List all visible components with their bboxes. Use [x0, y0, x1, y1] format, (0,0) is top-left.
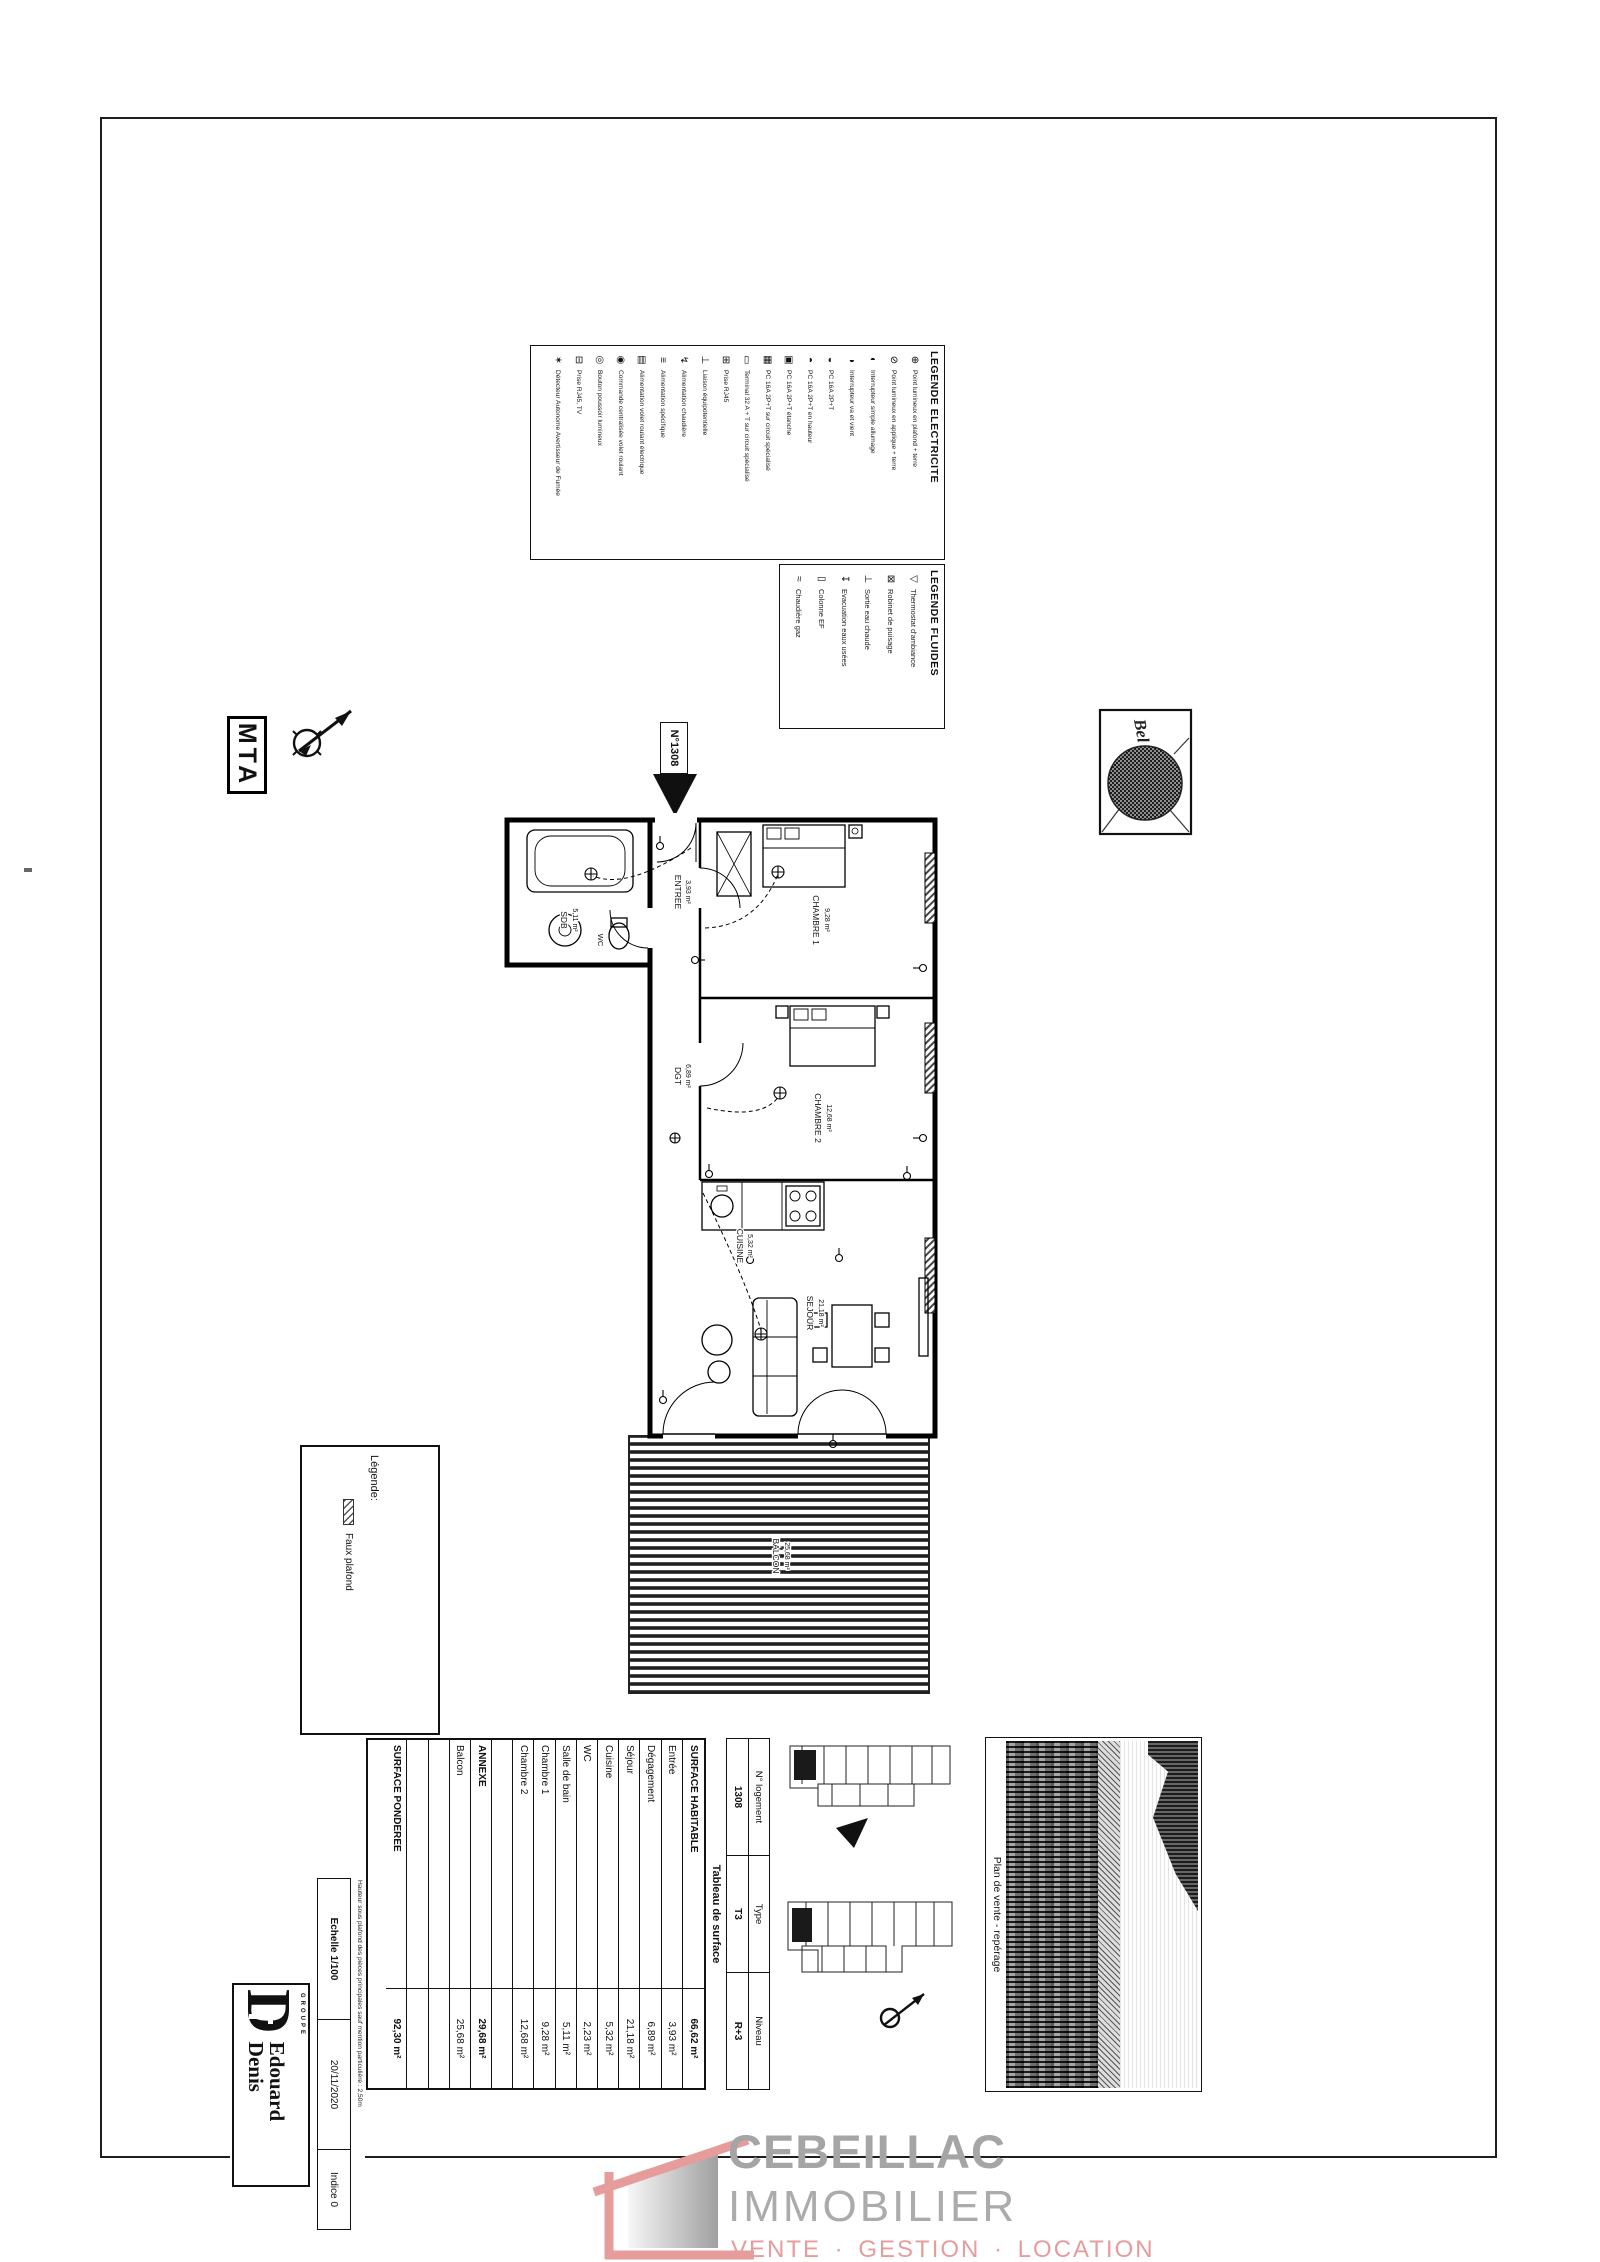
tv-socket-icon: ⊟ — [574, 350, 584, 370]
edouard-denis-logo: GROUPE D Edouard Denis — [232, 1983, 310, 2187]
legend-item: ↯Alimentation chaudière — [673, 350, 694, 555]
switch-twoway-icon: ◑ — [847, 350, 857, 370]
scale-cell: Echelle 1/100 — [318, 1879, 350, 2019]
rj45-icon: ⊞ — [721, 350, 731, 370]
room-label-chambre2: CHAMBRE 2 — [813, 1093, 823, 1143]
legend-item: ◓PC 16A 2P+T en hauteur — [799, 350, 820, 555]
surface-table: SURFACE HABITABLE66,62 m² Entrée3,93 m² … — [366, 1738, 706, 2090]
legend-item: ✶Détecteur Autonome Avertisseur de Fumée — [547, 350, 568, 555]
legend-electricite: LEGENDE ELECTRICITE ⊕Point lumineux en p… — [530, 345, 945, 560]
legend-item: ⊥Sortie eau chaude — [856, 569, 879, 724]
boiler-icon: ≈ — [794, 569, 804, 589]
thermostat-icon: ▽ — [909, 569, 919, 589]
main-walls — [650, 820, 935, 1436]
drain-icon: ↧ — [840, 569, 850, 589]
room-label-entree: ENTREE — [673, 875, 683, 910]
tap-icon: ⊠ — [886, 569, 896, 589]
hot-water-icon: ⊥ — [863, 569, 873, 589]
info-header-niveau: Niveau — [748, 1973, 769, 2089]
room-area-entree: 3,93 m² — [684, 880, 691, 904]
legend-item: ▦PC 16A 2P+T sur circuit spécialisé — [757, 350, 778, 555]
legend-item: ▣PC 16A 2P+T étanche — [778, 350, 799, 555]
push-button-icon: ◎ — [595, 350, 605, 370]
table-row: Salle de bain5,11 m² — [556, 1740, 577, 2088]
room-area-dgt: 6,89 m² — [684, 1064, 691, 1088]
faux-plafond-hatch-swatch — [343, 1499, 354, 1525]
legend-item: ▭Terminal 32 A + T sur circuit spécialis… — [736, 350, 757, 555]
window — [925, 1023, 935, 1093]
table-row: Chambre 212,68 m² — [513, 1740, 534, 2088]
legend-item: ◑Interrupteur va et vient — [841, 350, 862, 555]
legend-item: ⊟Prise RJ45, TV — [568, 350, 589, 555]
room-area-chambre1: 9,28 m² — [823, 908, 830, 932]
scale-date-indice-row: Echelle 1/100 20/11/2020 Indice 0 — [317, 1878, 351, 2230]
legend-item: ▽Thermostat d'ambiance — [902, 569, 925, 724]
indice-cell: Indice 0 — [318, 2149, 350, 2229]
legend-fluides: LEGENDE FLUIDES ▽Thermostat d'ambiance ⊠… — [779, 564, 945, 729]
legend-item: ⊞Prise RJ45 — [715, 350, 736, 555]
room-label-sdb: SDB — [559, 911, 569, 929]
key-plan — [772, 1732, 982, 2090]
table-row: SURFACE HABITABLE66,62 m² — [683, 1740, 704, 2088]
table-row — [429, 1740, 450, 2088]
info-value-niveau: R+3 — [727, 1973, 748, 2089]
room-label-sejour: SEJOUR — [805, 1296, 815, 1330]
legend-item: ◉Commande centralisée volet roulant — [610, 350, 631, 555]
legend-item: ⊠Robinet de puisage — [879, 569, 902, 724]
watermark-brand2: IMMOBILIER — [728, 2182, 1017, 2232]
legend-item: ≡Alimentation spécifique — [652, 350, 673, 555]
watermark-tagline: VENTE · GESTION · LOCATION — [731, 2236, 1155, 2262]
faux-plafond-caption: Légende: — [368, 1455, 380, 1501]
legend-item: ▤Alimentation volet roulant électrique — [631, 350, 652, 555]
room-area-balcon: 25,68 m² — [783, 1542, 790, 1570]
smoke-detector-icon: ✶ — [553, 350, 563, 370]
unit-number-tag: N°1308 — [660, 722, 688, 774]
reperage-panel: Plan de vente - repérage — [985, 1737, 1202, 2092]
legend-fluides-title: LEGENDE FLUIDES — [928, 570, 940, 724]
socket-high-icon: ◓ — [805, 350, 815, 370]
mta-logo: MTA — [227, 716, 267, 794]
room-label-wc: WC — [596, 934, 605, 947]
info-header-logement: N° logement — [748, 1739, 769, 1855]
legend-item: ⊕Point lumineux en plafond + terre — [904, 350, 925, 555]
socket-dedicated-icon: ▦ — [763, 350, 773, 370]
table-row: Chambre 19,28 m² — [535, 1740, 556, 2088]
table-title: Tableau de surface — [706, 1738, 726, 2090]
window — [925, 853, 935, 923]
stamp: Bel — [1098, 708, 1193, 836]
reperage-title: Plan de vente - repérage — [989, 1743, 1005, 2086]
boiler-supply-icon: ↯ — [679, 350, 689, 370]
faux-plafond-item: Faux plafond — [343, 1533, 354, 1591]
window — [925, 1238, 935, 1313]
room-label-chambre1: CHAMBRE 1 — [811, 895, 821, 945]
north-arrow-icon — [285, 705, 360, 765]
room-area-chambre2: 12,68 m² — [825, 1104, 832, 1132]
legend-item: ↧Evacuation eaux usées — [833, 569, 856, 724]
brand-name-2: Denis — [245, 2042, 266, 2121]
shutter-control-icon: ◉ — [616, 350, 626, 370]
legend-item: ▯Colonne EF — [810, 569, 833, 724]
legend-item: ◒PC 16A 2P+T — [820, 350, 841, 555]
table-row: Dégagement6,89 m² — [640, 1740, 661, 2088]
watermark-brand: CEBEILLAC — [728, 2124, 1006, 2179]
table-row: ANNEXE29,68 m² — [471, 1740, 492, 2088]
photo-rooftops — [1098, 1741, 1120, 2088]
titleblock-left: Hauteur sous plafond des pièces principa… — [230, 1878, 365, 2230]
legend-item: ≈Chaudière gaz — [787, 569, 810, 724]
socket-icon: ◒ — [826, 350, 836, 370]
room-label-cuisine: CUISINE — [735, 1229, 745, 1264]
fine-print: Hauteur sous plafond des pièces principa… — [356, 1880, 363, 2230]
earth-bond-icon: ⊥ — [700, 350, 710, 370]
photo-buildings — [1006, 1741, 1098, 2088]
light-ceiling-icon: ⊕ — [910, 350, 920, 370]
unit-info-table: N° logement 1308 Type T3 Niveau R+3 — [726, 1738, 770, 2090]
table-row: Cuisine5,32 m² — [598, 1740, 619, 2088]
terminal-32a-icon: ▭ — [742, 350, 752, 370]
info-header-type: Type — [748, 1856, 769, 1972]
room-area-cuisine: 5,32 m² — [746, 1234, 753, 1258]
riser-icon: ▯ — [817, 569, 827, 589]
faux-plafond-legend: Légende: Faux plafond — [300, 1445, 440, 1735]
dedicated-supply-icon: ≡ — [658, 350, 668, 370]
socket-sealed-icon: ▣ — [784, 350, 794, 370]
legend-item: ◎Bouton poussoir lumineux — [589, 350, 610, 555]
scan-sheet: LEGENDE ELECTRICITE ⊕Point lumineux en p… — [0, 0, 1600, 2262]
room-area-sdb: 5,11 m² — [571, 908, 578, 932]
info-value-logement: 1308 — [727, 1739, 748, 1855]
legend-electricite-title: LEGENDE ELECTRICITE — [928, 351, 940, 555]
table-row: Entrée3,93 m² — [662, 1740, 683, 2088]
floor-plan: SDB 5,11 m² WC ENTREE 3,93 m² DGT 6,89 m… — [495, 808, 945, 1708]
legend-item: ◐Interrupteur simple allumage — [862, 350, 883, 555]
info-value-type: T3 — [727, 1856, 748, 1972]
table-row: WC2,23 m² — [577, 1740, 598, 2088]
room-label-balcon: BALCON — [771, 1539, 781, 1574]
table-row: SURFACE PONDEREE92,30 m² — [386, 1740, 407, 2088]
titleblock-main: N° logement 1308 Type T3 Niveau R+3 Tabl… — [365, 1738, 770, 2090]
legend-item: ⊘Point lumineux en applique + terre — [883, 350, 904, 555]
switch-single-icon: ◐ — [868, 350, 878, 370]
big-d-glyph: D — [239, 1989, 295, 2034]
light-wall-icon: ⊘ — [889, 350, 899, 370]
room-label-dgt: DGT — [673, 1067, 683, 1085]
table-row — [407, 1740, 428, 2088]
date-cell: 20/11/2020 — [318, 2019, 350, 2149]
legend-item: ⊥Liaison équipotentielle — [694, 350, 715, 555]
table-row: Balcon25,68 m² — [450, 1740, 471, 2088]
room-area-sejour: 21,18 m² — [817, 1299, 824, 1327]
brand-name-1: Edouard — [266, 2042, 287, 2121]
table-row: Séjour21,18 m² — [619, 1740, 640, 2088]
table-row — [492, 1740, 513, 2088]
shutter-supply-icon: ▤ — [637, 350, 647, 370]
scan-speck — [24, 868, 32, 872]
